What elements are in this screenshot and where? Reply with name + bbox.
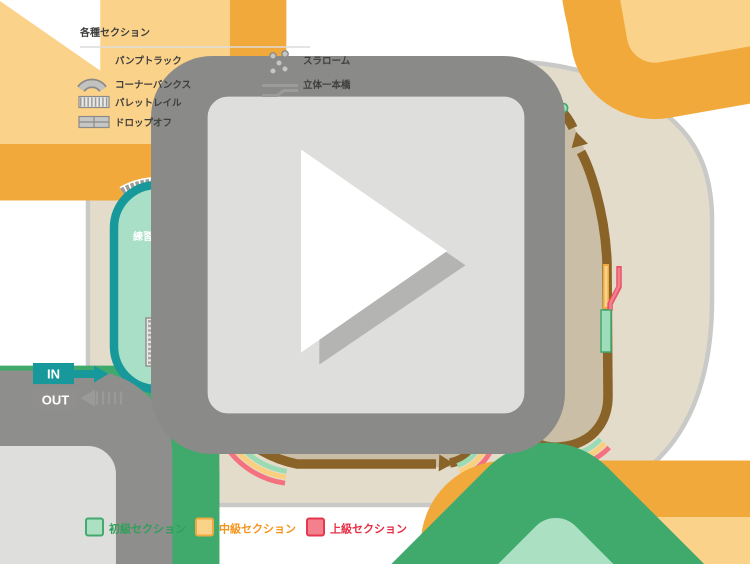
practice-pump-track-icons bbox=[0, 399, 144, 564]
legend-label-pump-track: パンプトラック bbox=[115, 55, 182, 67]
bridge-green-lane bbox=[601, 310, 611, 352]
beginner-label: 初級セクション bbox=[109, 522, 186, 536]
legend-label-corner-banks: コーナーバンクス bbox=[115, 79, 191, 91]
legend-label-slalom: スラローム bbox=[303, 56, 351, 67]
legend-header: 各種セクション bbox=[79, 26, 150, 39]
legend-label-elevated-bridge: 立体一本橋 bbox=[303, 79, 351, 91]
pallet-rail-icon bbox=[79, 97, 109, 108]
legend-label-drop-off: ドロップオフ bbox=[115, 117, 172, 129]
course-map: 練習エリア IN OUT OUT IN 本コース bbox=[0, 0, 750, 564]
drop-off-icon bbox=[79, 117, 109, 128]
advanced-label: 上級セクション bbox=[330, 522, 407, 536]
entry-label-left: IN bbox=[33, 363, 74, 384]
beginner-swatch bbox=[86, 519, 103, 536]
advanced-swatch bbox=[307, 519, 324, 536]
svg-text:IN: IN bbox=[47, 367, 60, 382]
exit-label-left: OUT bbox=[33, 389, 78, 410]
intermediate-label: 中級セクション bbox=[219, 522, 296, 536]
svg-text:OUT: OUT bbox=[42, 393, 70, 408]
pump-track-icon bbox=[171, 76, 544, 433]
legend-label-pallet-rail: パレットレイル bbox=[115, 97, 182, 109]
intermediate-swatch bbox=[196, 519, 213, 536]
